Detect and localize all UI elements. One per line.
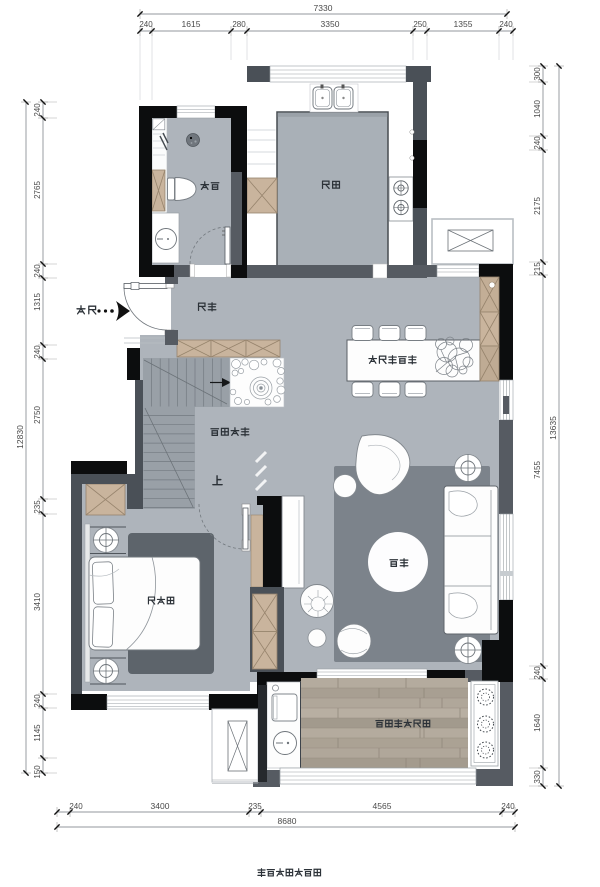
svg-text:1355: 1355 [454,19,473,29]
svg-text:7330: 7330 [314,3,333,13]
svg-text:215: 215 [533,262,542,276]
svg-text:1040: 1040 [533,100,542,118]
svg-text:2750: 2750 [33,406,42,424]
svg-text:300: 300 [533,67,542,81]
svg-text:12830: 12830 [15,425,25,449]
svg-text:330: 330 [533,770,542,784]
svg-text:4565: 4565 [373,801,392,811]
svg-text:235: 235 [248,802,262,811]
svg-text:8680: 8680 [278,816,297,826]
svg-text:3410: 3410 [33,593,42,611]
svg-text:150: 150 [33,765,42,779]
svg-text:240: 240 [501,802,515,811]
svg-text:13635: 13635 [548,416,558,440]
svg-text:240: 240 [69,802,83,811]
svg-text:240: 240 [33,103,42,117]
svg-text:1315: 1315 [33,293,42,311]
svg-text:235: 235 [33,500,42,514]
svg-text:250: 250 [413,20,427,29]
svg-text:240: 240 [33,694,42,708]
svg-text:7455: 7455 [533,461,542,479]
svg-text:240: 240 [533,136,542,150]
svg-text:240: 240 [499,20,513,29]
svg-text:2175: 2175 [533,197,542,215]
svg-text:3350: 3350 [321,19,340,29]
svg-text:1640: 1640 [533,714,542,732]
svg-text:280: 280 [232,20,246,29]
svg-text:240: 240 [139,20,153,29]
svg-text:240: 240 [33,264,42,278]
svg-text:1145: 1145 [33,724,42,742]
svg-text:240: 240 [533,666,542,680]
svg-text:3400: 3400 [151,801,170,811]
svg-text:1615: 1615 [182,19,201,29]
svg-text:240: 240 [33,345,42,359]
svg-text:2765: 2765 [33,181,42,199]
